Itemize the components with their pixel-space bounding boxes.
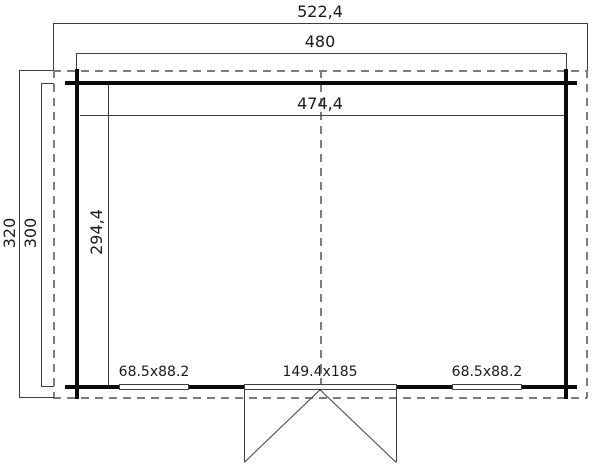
extension-line	[587, 23, 588, 70]
dim-label-inner-depth: 294,4	[87, 202, 107, 262]
window-left-size-label: 68.5x88.2	[104, 363, 204, 381]
roof-outline-bottom	[53, 397, 587, 399]
door-size-label: 149.4x185	[260, 363, 380, 381]
extension-line	[19, 397, 54, 398]
wall-left	[75, 69, 79, 399]
window-right	[452, 384, 522, 390]
dimension-line-frame-width	[76, 53, 567, 54]
wall-bottom-segment	[397, 385, 452, 389]
window-right-size-label: 68.5x88.2	[437, 363, 537, 381]
dim-label-frame-depth: 300	[21, 203, 41, 263]
dimension-line-inner-depth	[108, 85, 109, 385]
floor-plan: 522,4 480 474,4 320 300 294,4 68.5x88.2 …	[0, 0, 600, 475]
roof-outline-right	[586, 70, 588, 398]
dim-label-inner-width: 474,4	[270, 94, 370, 114]
dim-label-overall-depth: 320	[0, 203, 20, 263]
extension-line	[19, 70, 53, 71]
dim-label-overall-width: 522,4	[270, 2, 370, 22]
wall-right	[564, 69, 568, 399]
extension-line	[53, 23, 54, 70]
roof-outline-left	[53, 70, 55, 398]
dimension-line-frame-depth	[41, 83, 42, 387]
window-left	[119, 384, 189, 390]
dim-label-frame-width: 480	[270, 32, 370, 52]
wall-bottom-segment	[522, 385, 577, 389]
dimension-line-inner-width	[80, 115, 564, 116]
door-swing-left	[244, 389, 321, 463]
door-leaf-right-edge	[396, 390, 397, 462]
wall-top	[65, 81, 577, 85]
center-axis-line	[320, 70, 322, 390]
extension-line	[41, 386, 54, 387]
door-swing-right	[319, 389, 397, 463]
extension-line	[41, 83, 54, 84]
wall-bottom-segment	[189, 385, 244, 389]
door-leaf-left-edge	[244, 390, 245, 462]
dimension-line-overall-width	[53, 23, 587, 24]
wall-bottom-segment	[65, 385, 119, 389]
